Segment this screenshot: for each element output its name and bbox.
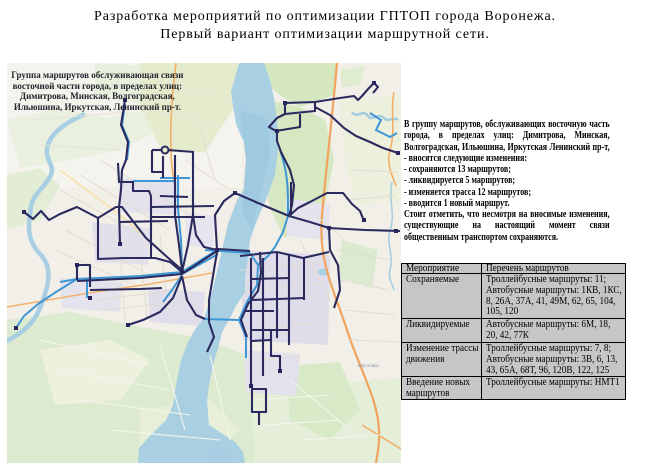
- svg-text:Масловка: Масловка: [358, 363, 379, 368]
